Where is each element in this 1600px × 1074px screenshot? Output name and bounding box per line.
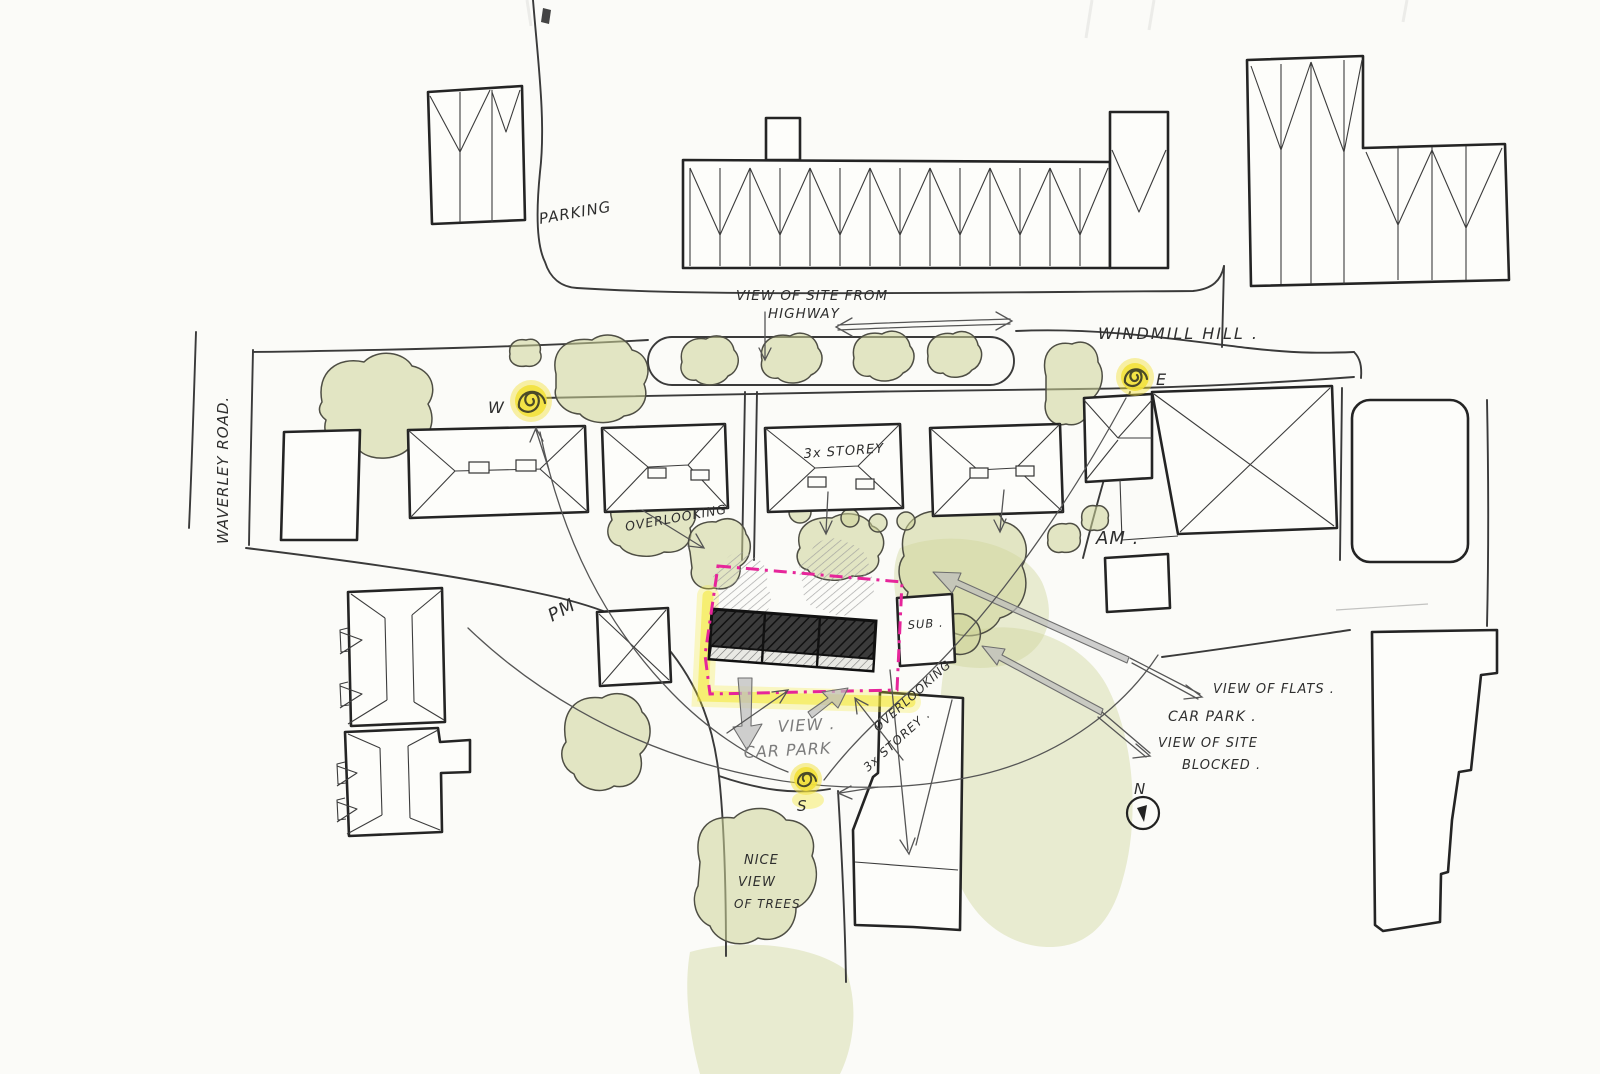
building-small-x bbox=[597, 608, 671, 686]
label-view-of-site-from: VIEW OF SITE FROM bbox=[736, 288, 888, 304]
label-sun-west: W bbox=[488, 398, 505, 417]
label-car-park-right: CAR PARK . bbox=[1168, 709, 1257, 725]
building-lower-left-1 bbox=[340, 588, 445, 726]
label-am: AM . bbox=[1095, 528, 1139, 549]
building-am-small bbox=[1105, 554, 1170, 612]
label-view-word: VIEW bbox=[738, 875, 776, 890]
sun-west-icon bbox=[510, 380, 552, 422]
label-of-trees: OF TREES bbox=[734, 897, 801, 911]
label-waverley-road: WAVERLEY ROAD. bbox=[214, 396, 232, 544]
label-view-of-site: VIEW OF SITE bbox=[1158, 736, 1258, 751]
building-left-small bbox=[281, 430, 360, 540]
label-windmill-hill: WINDMILL HILL . bbox=[1098, 324, 1259, 343]
sun-south-icon bbox=[790, 763, 822, 795]
label-nice: NICE bbox=[744, 853, 779, 868]
label-highway: HIGHWAY bbox=[768, 306, 841, 322]
proposed-building-block bbox=[709, 609, 876, 671]
label-view-of-flats: VIEW OF FLATS . bbox=[1213, 682, 1335, 697]
building-top-left bbox=[428, 86, 525, 224]
building-rounded-block bbox=[1352, 400, 1468, 562]
label-sun-east: E bbox=[1156, 370, 1167, 389]
site-sketch-canvas: PARKING VIEW OF SITE FROM HIGHWAY WINDMI… bbox=[0, 0, 1600, 1074]
label-blocked: BLOCKED . bbox=[1182, 758, 1261, 773]
sun-east-icon bbox=[1116, 358, 1154, 396]
label-sub: SUB . bbox=[907, 616, 944, 632]
label-sun-south: S bbox=[797, 797, 808, 815]
label-north: N bbox=[1134, 780, 1146, 798]
label-view-pencil: VIEW . bbox=[777, 714, 836, 736]
